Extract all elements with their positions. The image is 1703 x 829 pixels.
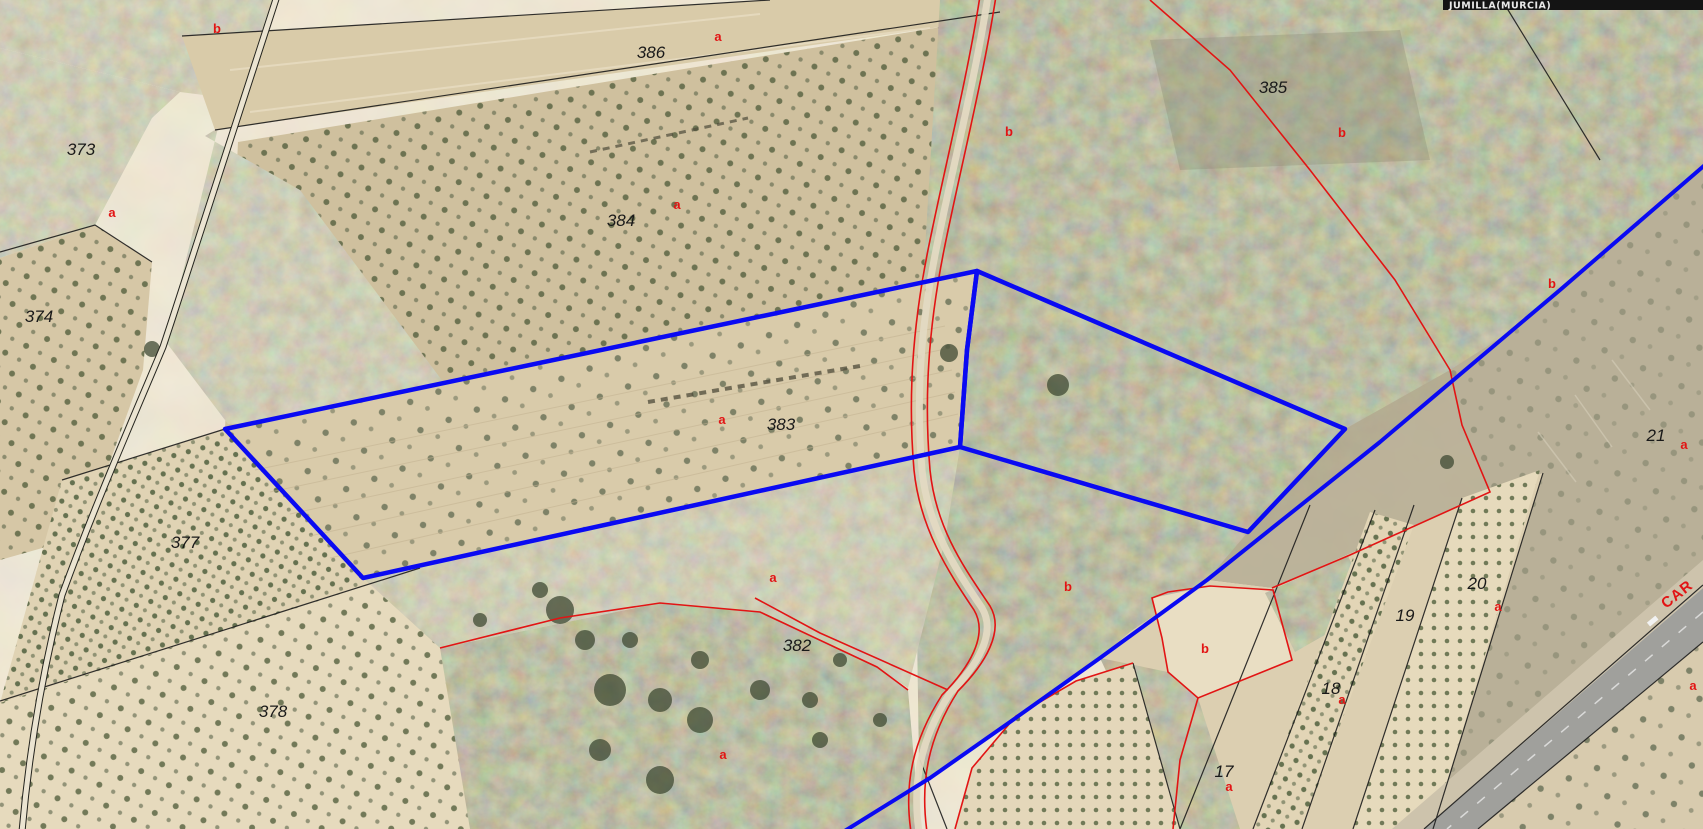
parcel-number-19: 19 — [1396, 606, 1415, 625]
municipality-bar: JUMILLA(MURCIA) — [1443, 0, 1703, 12]
subparcel-letter-b: b — [213, 21, 221, 36]
subparcel-letter-b: b — [1201, 641, 1209, 656]
parcel-number-374: 374 — [25, 307, 53, 326]
subparcel-letter-a: a — [1680, 437, 1688, 452]
parcel-number-383: 383 — [767, 415, 796, 434]
subparcel-letter-a: a — [673, 197, 681, 212]
subparcel-letter-a: a — [714, 29, 722, 44]
orthophoto-map-canvas[interactable]: 3733743773783863843833823852120191817 ba… — [0, 0, 1703, 829]
parcel-number-373: 373 — [67, 140, 96, 159]
scrub-light-patch — [1150, 30, 1430, 170]
subparcel-letter-a: a — [719, 747, 727, 762]
subparcel-letter-a: a — [1338, 692, 1346, 707]
cadastral-map-viewport[interactable]: 3733743773783863843833823852120191817 ba… — [0, 0, 1703, 829]
parcel-number-377: 377 — [171, 533, 200, 552]
subparcel-letter-a: a — [1494, 599, 1502, 614]
parcel-number-378: 378 — [259, 702, 288, 721]
parcel-number-386: 386 — [637, 43, 666, 62]
parcel-number-21: 21 — [1646, 426, 1666, 445]
subparcel-letter-a: a — [1689, 678, 1697, 693]
municipality-label: JUMILLA(MURCIA) — [1448, 1, 1551, 12]
subparcel-letter-a: a — [108, 205, 116, 220]
subparcel-letter-a: a — [769, 570, 777, 585]
subparcel-letter-b: b — [1064, 579, 1072, 594]
subparcel-letter-a: a — [718, 412, 726, 427]
parcel-number-20: 20 — [1467, 574, 1487, 593]
subparcel-letter-b: b — [1548, 276, 1556, 291]
subparcel-letter-b: b — [1338, 125, 1346, 140]
subparcel-letter-a: a — [1225, 779, 1233, 794]
parcel-number-385: 385 — [1259, 78, 1288, 97]
parcel-number-382: 382 — [783, 636, 812, 655]
subparcel-letter-b: b — [1005, 124, 1013, 139]
parcel-number-384: 384 — [607, 211, 635, 230]
